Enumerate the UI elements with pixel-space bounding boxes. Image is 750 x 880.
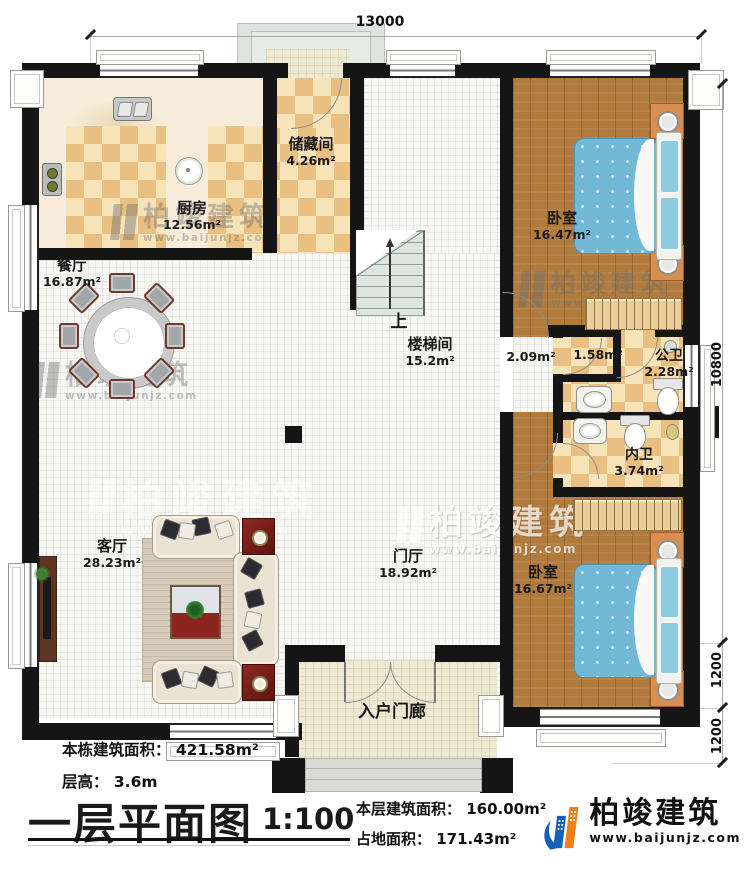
room-label-hallway: 2.09m² (506, 350, 555, 365)
sofa-pillow (216, 671, 234, 689)
stat-footprint: 占地面积： 171.43m² (356, 828, 516, 849)
brand-logo: 柏竣建筑 www.baijunjz.com (541, 797, 741, 867)
room-name: 门厅 (379, 548, 437, 566)
page-title: 一层平面图 (28, 790, 253, 852)
toilet (653, 378, 681, 414)
room-label-private-bath: 内卫 3.74m² (614, 447, 663, 478)
pillow (659, 139, 680, 194)
room-label-bedroom-bottom: 卧室 16.67m² (514, 564, 572, 596)
room-area: 2.09m² (506, 350, 555, 365)
extension-line (701, 37, 702, 63)
room-name: 卧室 (533, 210, 591, 228)
extension-line (90, 37, 91, 63)
kitchen-tile-left (66, 126, 166, 253)
dimension-right-bottom: 1200 (710, 718, 725, 754)
room-area: 15.2m² (405, 354, 454, 369)
kitchen-round-sink (175, 157, 203, 185)
room-area: 1.58m² (573, 348, 622, 363)
window (390, 63, 455, 78)
room-area: 16.87m² (43, 275, 101, 290)
bath-accessory (666, 424, 679, 440)
window-sill (386, 50, 461, 65)
room-name: 厨房 (163, 200, 221, 218)
room-label-foyer: 门厅 18.92m² (379, 548, 437, 580)
stat-floor-area: 本层建筑面积： 160.00m² (356, 798, 546, 819)
dining-chair (109, 379, 135, 399)
room-label-living: 客厅 28.23m² (83, 538, 141, 570)
room-area: 2.28m² (644, 365, 693, 380)
side-table (242, 518, 275, 555)
room-name: 储藏间 (286, 136, 335, 154)
room-label-bedroom-top: 卧室 16.47m² (533, 210, 591, 242)
sink-basin (579, 423, 601, 439)
window-sill (10, 70, 44, 108)
pillow (659, 621, 680, 675)
window-sill (546, 50, 656, 65)
room-label-stairwell: 楼梯间 15.2m² (405, 336, 454, 368)
room-name: 内卫 (614, 447, 663, 464)
table-lamp (252, 676, 268, 692)
bathroom-sink (573, 418, 607, 444)
sink-basin (117, 102, 134, 117)
dimension-right-mid: 1200 (710, 652, 725, 688)
porch-column (480, 758, 513, 793)
window-sill (8, 563, 25, 669)
room-name: 楼梯间 (405, 336, 454, 354)
brand-website: www.baijunjz.com (589, 830, 741, 845)
table-lamp (252, 530, 268, 546)
room-label-dining: 餐厅 16.87m² (43, 257, 101, 289)
plant (186, 601, 204, 619)
nightstand-lamp (657, 111, 679, 133)
room-area: 3.74m² (614, 464, 663, 479)
entry-door-frame (434, 662, 436, 702)
stair-up-label: 上 (391, 312, 408, 332)
wall-segment (553, 330, 563, 338)
wall-segment (435, 645, 500, 662)
drawing-scale: 1:100 (262, 802, 354, 836)
window (540, 707, 660, 727)
wall-segment (500, 412, 513, 707)
title-underline-shadow (28, 845, 350, 846)
toilet-bowl (624, 423, 646, 450)
stair-up-arrow (386, 238, 394, 247)
room-area: 16.67m² (514, 582, 572, 597)
side-table (242, 664, 275, 701)
sofa-pillow (244, 611, 263, 630)
plant (36, 568, 48, 580)
pillow (659, 196, 680, 251)
burner (47, 168, 58, 179)
room-name: 公卫 (644, 348, 693, 365)
room-name: 入户门廊 (358, 702, 426, 722)
room-label-kitchen: 厨房 12.56m² (163, 200, 221, 232)
room-label-public-bath: 公卫 2.28m² (644, 348, 693, 379)
dimension-line-top (90, 36, 702, 37)
bathroom-sink (576, 386, 612, 413)
double-sink (113, 97, 152, 121)
dimension-top: 13000 (345, 14, 415, 30)
window-sill (8, 205, 25, 312)
brand-name: 柏竣建筑 (589, 797, 741, 830)
wall-segment (553, 487, 683, 497)
dining-chair (165, 323, 185, 349)
porch-steps (305, 758, 482, 792)
stat-total-area: 本栋建筑面积： 421.58m² (62, 738, 259, 760)
room-area: 16.47m² (533, 228, 591, 243)
stat-floor-height: 层高： 3.6m (62, 770, 158, 792)
dim-tick (717, 757, 728, 768)
porch-column (272, 758, 305, 793)
wall-segment (263, 78, 277, 253)
window-sill (688, 70, 724, 110)
burner (47, 181, 58, 192)
window-sill (273, 695, 299, 737)
entry-door-frame (344, 662, 346, 702)
dining-chair (109, 273, 135, 293)
sofa-pillow (181, 671, 200, 690)
stair-hall-floor (364, 78, 500, 255)
sink-basin (583, 391, 606, 408)
window (100, 63, 198, 78)
room-label-entry-porch: 入户门廊 (358, 702, 426, 722)
toilet (620, 415, 648, 449)
wardrobe (573, 499, 682, 531)
window-sill (536, 729, 666, 747)
window (550, 63, 650, 78)
dining-chair (59, 323, 79, 349)
sofa-pillow (178, 522, 196, 540)
room-area: 18.92m² (379, 566, 437, 581)
room-name: 卧室 (514, 564, 572, 582)
column (285, 426, 302, 443)
floor-plan-page: 柏竣建筑 www.baijunjz.com 柏竣建筑 www.baijunjz.… (0, 0, 750, 880)
drain (186, 168, 190, 172)
window-sill (96, 50, 204, 65)
brand-logo-icon (541, 797, 581, 859)
wardrobe (585, 298, 682, 330)
toilet-bowl (657, 387, 679, 415)
stair-direction-line (389, 247, 391, 309)
up-text: 上 (391, 312, 408, 332)
room-label-closet: 1.58m² (573, 348, 622, 363)
sink-basin (133, 102, 150, 117)
title-underline (28, 838, 350, 841)
coffee-table (170, 585, 221, 639)
room-area: 4.26m² (286, 154, 335, 169)
wall-segment (553, 374, 621, 382)
room-label-storage: 储藏间 4.26m² (286, 136, 335, 168)
room-name: 客厅 (83, 538, 141, 556)
dimension-right-main: 10800 (710, 342, 725, 387)
extension-line (612, 763, 722, 764)
window-sill (478, 695, 504, 737)
stove (42, 163, 62, 196)
pillow (659, 565, 680, 619)
room-area: 28.23m² (83, 556, 141, 571)
room-area: 12.56m² (163, 218, 221, 233)
tv (43, 577, 51, 639)
room-name: 餐厅 (43, 257, 101, 275)
table-center (114, 328, 130, 344)
